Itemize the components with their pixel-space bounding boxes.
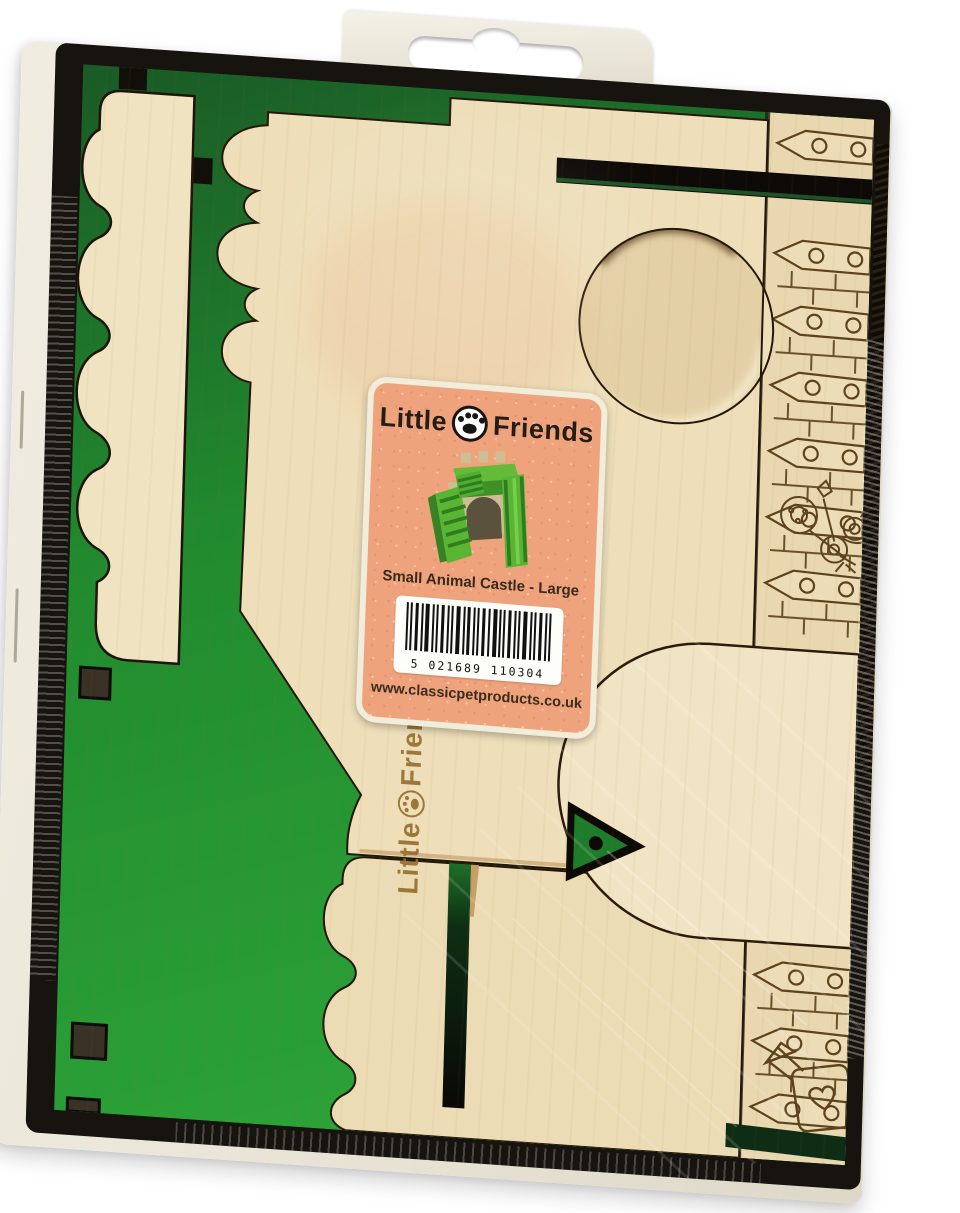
brand-word-little: Little	[379, 401, 448, 437]
paw-print-icon	[397, 790, 425, 819]
product-photo: { "brand": { "first": "Little", "second"…	[0, 0, 960, 1213]
box-spine-mark	[20, 390, 25, 448]
barcode-graphic	[403, 602, 555, 662]
shrinkwrapped-front-panel: Little Friends Little Friends	[26, 42, 891, 1190]
wood-logo-word-little: Little	[392, 820, 426, 895]
barcode: 5 021689 110304	[393, 595, 564, 685]
box-spine-mark	[14, 588, 19, 662]
castle-illustration	[406, 443, 560, 577]
paw-print-icon	[451, 404, 488, 443]
product-label: Little Friends	[355, 375, 608, 740]
brand-word-friends: Friends	[492, 410, 594, 449]
boxed-product-package: Little Friends Little Friends	[0, 40, 893, 1204]
